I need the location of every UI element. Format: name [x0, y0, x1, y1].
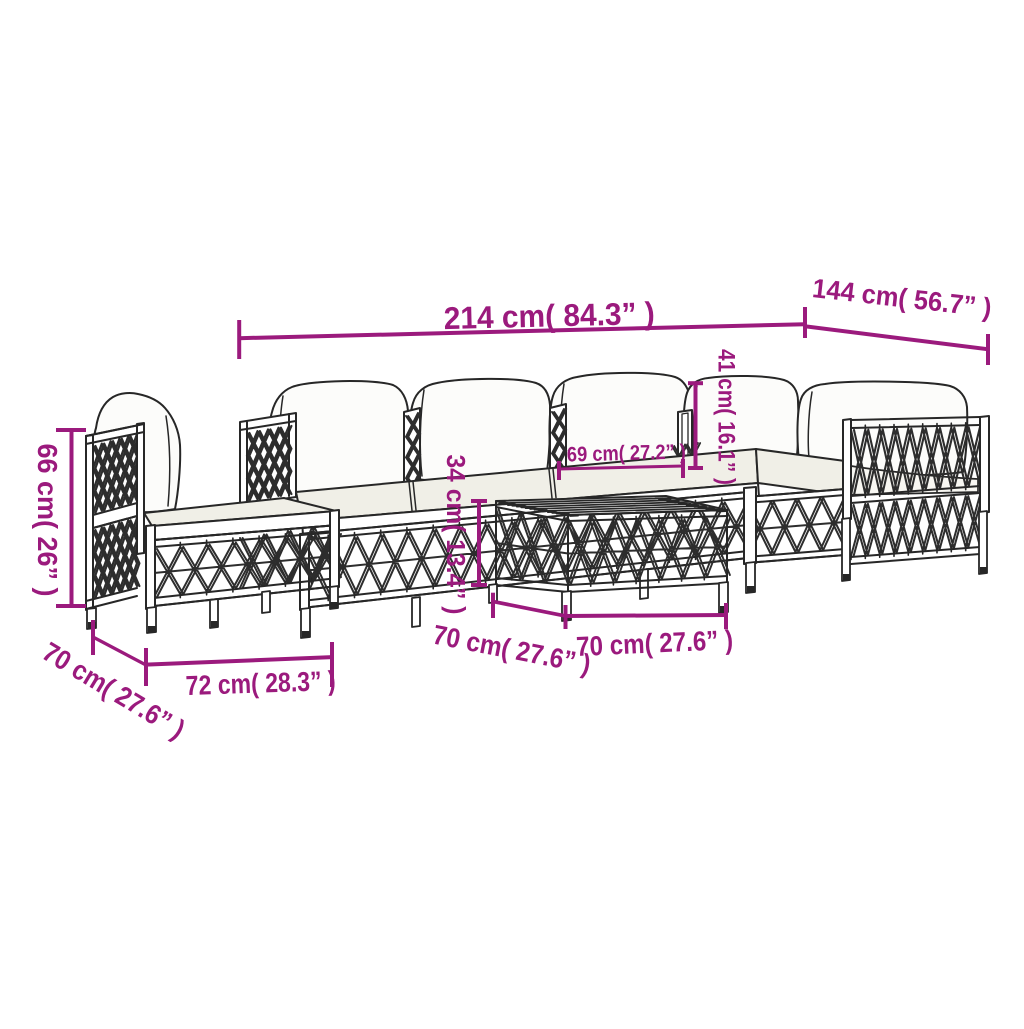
svg-text:72 cm( 28.3” ): 72 cm( 28.3” )	[185, 665, 336, 701]
svg-text:41 cm( 16.1” ): 41 cm( 16.1” )	[713, 349, 740, 485]
svg-text:214 cm( 84.3” ): 214 cm( 84.3” )	[443, 295, 655, 336]
svg-text:69 cm( 27.2” ): 69 cm( 27.2” )	[567, 441, 687, 467]
svg-text:34 cm( 13.4” ): 34 cm( 13.4” )	[441, 455, 471, 615]
svg-text:66 cm( 26” ): 66 cm( 26” )	[32, 444, 63, 597]
